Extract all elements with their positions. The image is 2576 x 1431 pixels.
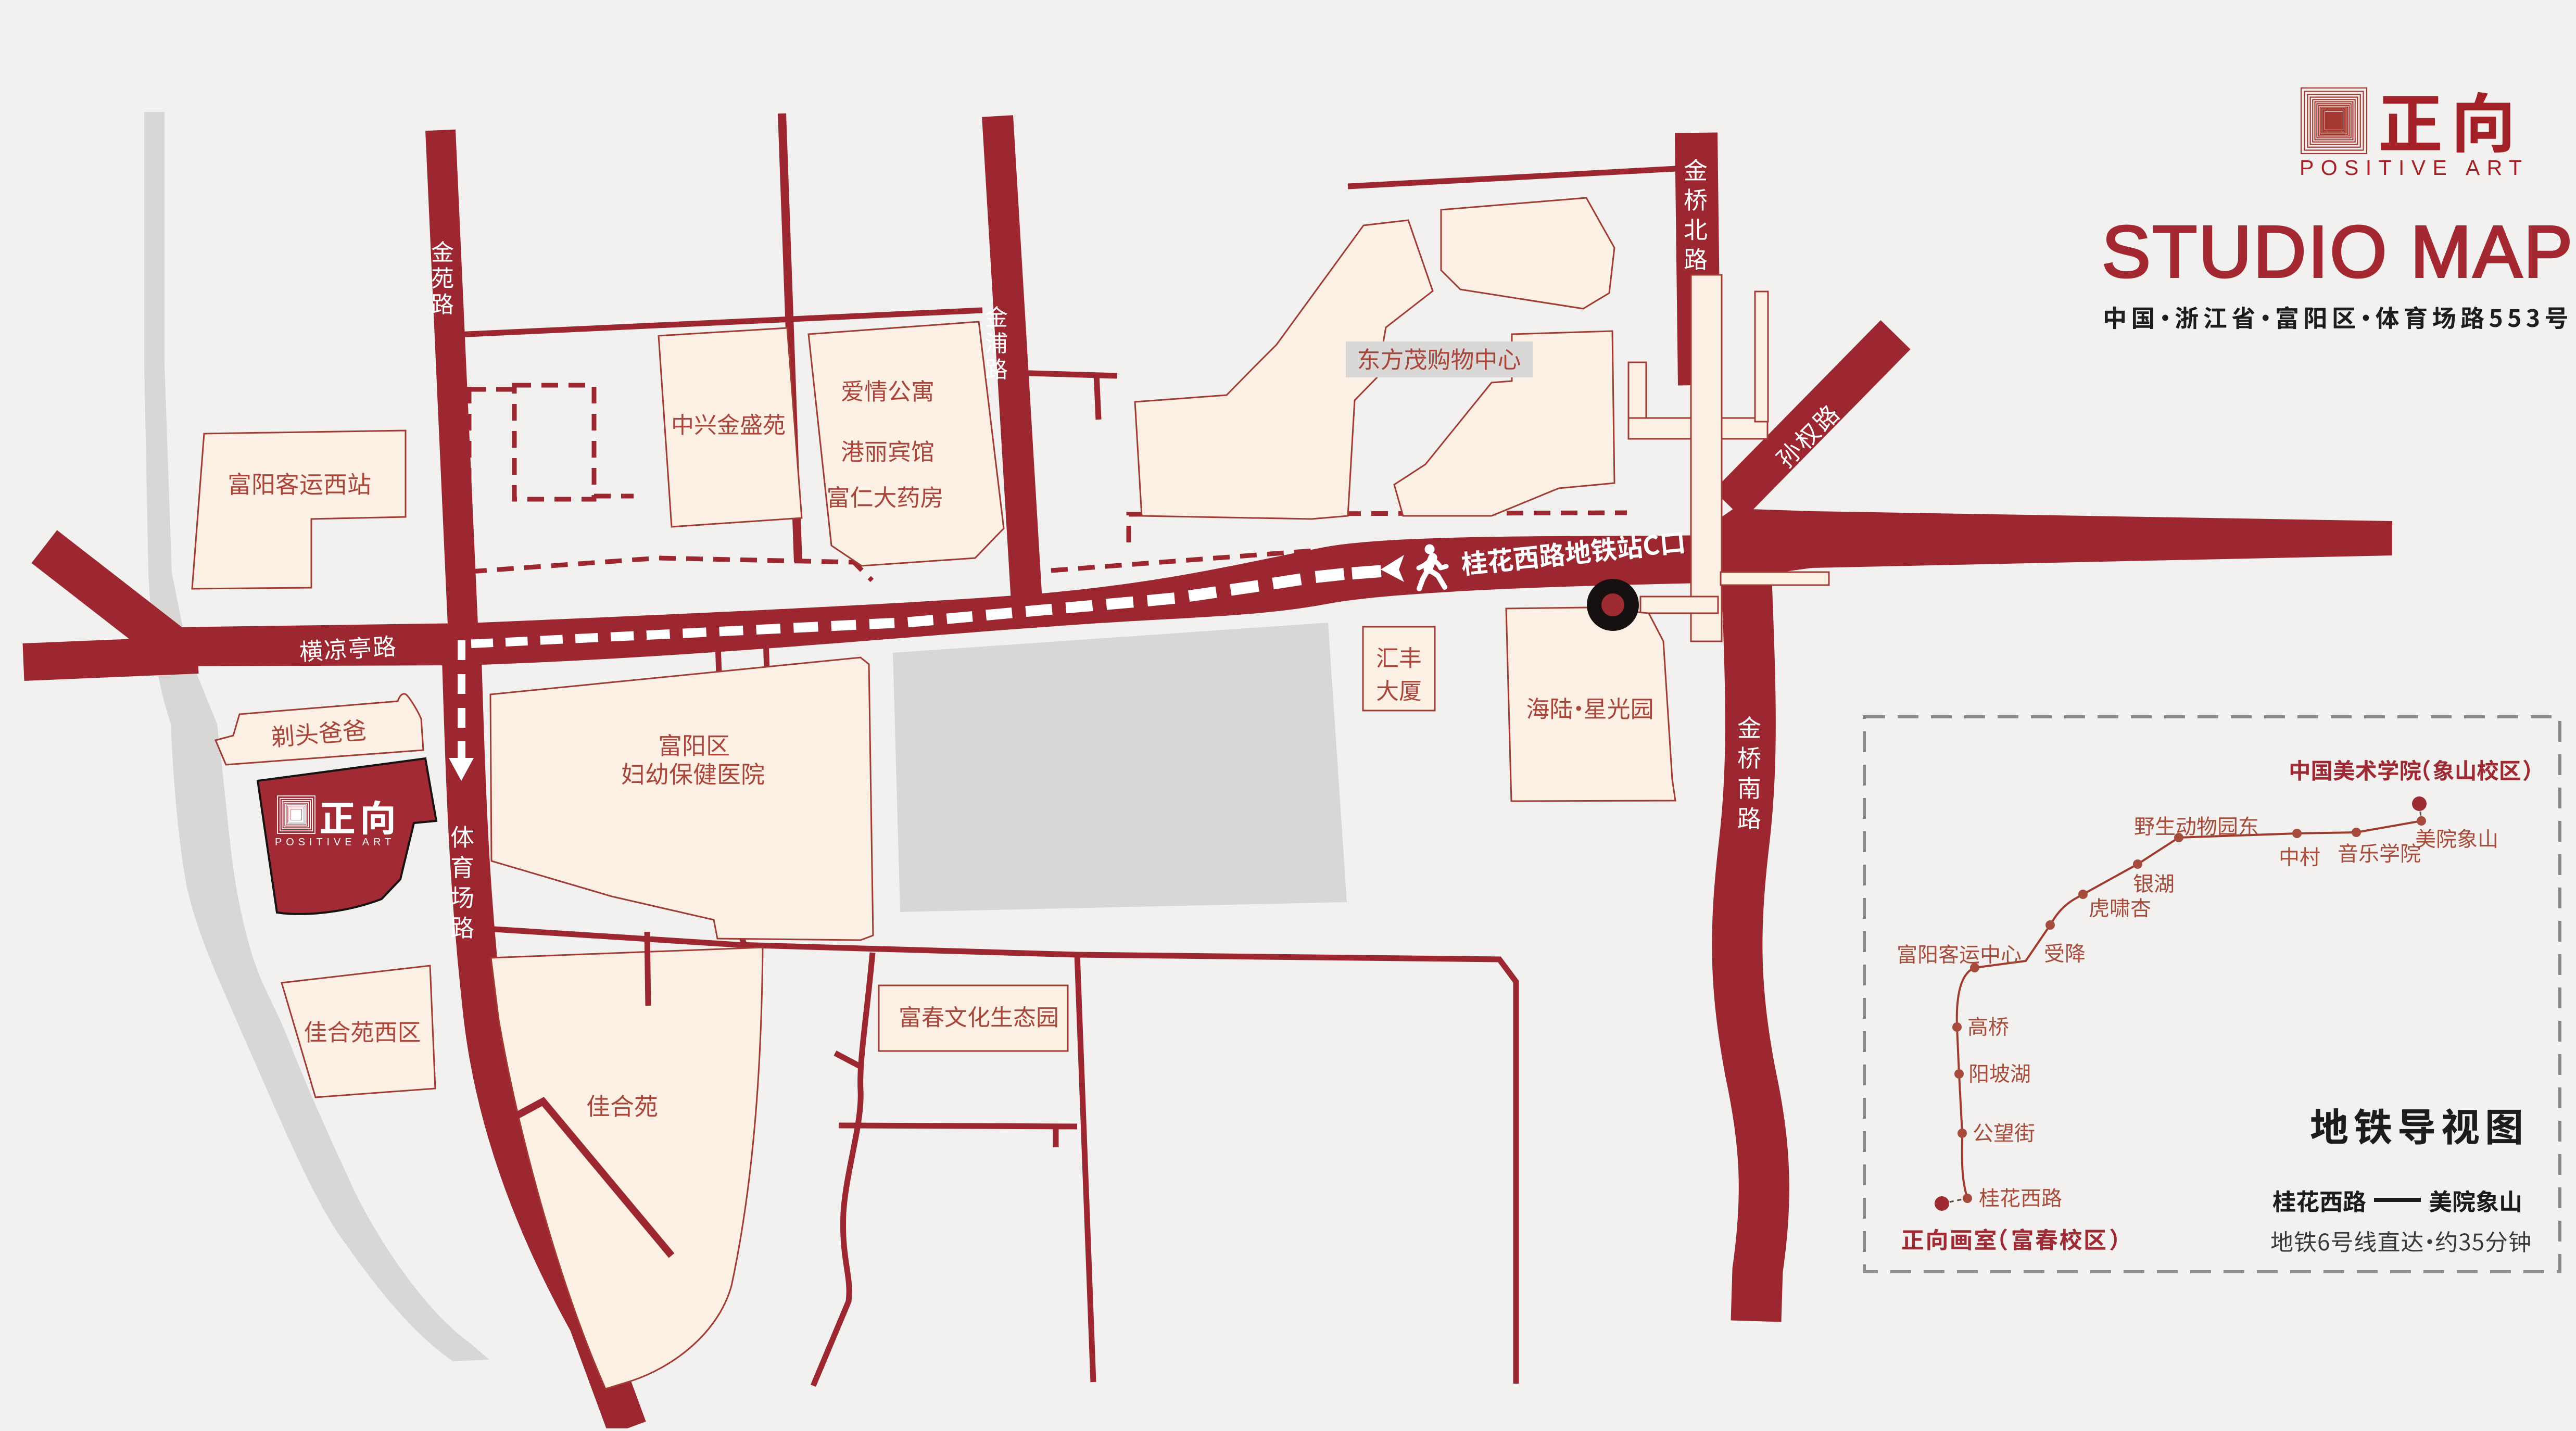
svg-text:POSITIVE ART: POSITIVE ART <box>275 837 395 848</box>
svg-text:POSITIVE ART: POSITIVE ART <box>2300 156 2529 180</box>
svg-text:STUDIO MAP: STUDIO MAP <box>2102 210 2574 293</box>
